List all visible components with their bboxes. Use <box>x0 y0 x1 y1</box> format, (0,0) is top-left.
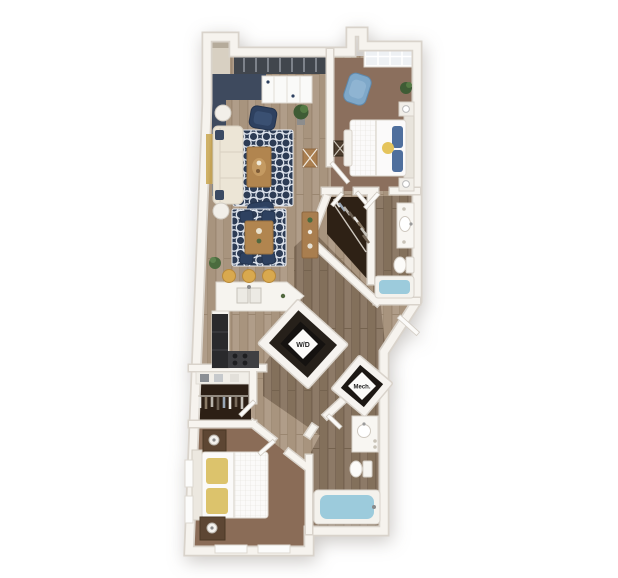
curtain-strip <box>206 134 213 184</box>
floorplan-image: W/D Mech. <box>0 0 618 578</box>
nightstand-2b <box>200 517 225 540</box>
bathtub-2 <box>314 490 380 524</box>
bar-stools <box>223 270 276 283</box>
living-window-band <box>234 56 332 74</box>
vanity-2 <box>352 416 378 452</box>
accent-wall-top <box>212 74 266 100</box>
wd-label: W/D <box>296 342 310 349</box>
pillow-blue-2 <box>392 150 403 172</box>
sofa <box>213 126 243 204</box>
nightstand-1a <box>399 102 414 116</box>
armchair-top <box>248 105 277 131</box>
pillow-yellow-round <box>382 142 394 154</box>
range-stove <box>228 351 259 368</box>
pillow-yellow-2 <box>206 488 228 514</box>
coffee-table <box>247 147 271 187</box>
console-table <box>302 212 318 258</box>
bathtub-1 <box>375 276 414 298</box>
plant-bedroom1 <box>400 82 412 94</box>
apartment-unit: W/D Mech. <box>185 32 420 553</box>
toilet-1 <box>394 257 414 273</box>
nightstand-1b <box>399 178 414 191</box>
mech-label: Mech. <box>353 385 370 391</box>
side-table-top <box>215 105 231 121</box>
floorplan-svg: W/D Mech. <box>0 0 618 578</box>
refrigerator <box>212 314 228 368</box>
vanity-1 <box>397 203 414 248</box>
bed-2 <box>192 450 268 520</box>
plant-dining <box>209 257 221 269</box>
dining-table <box>245 221 273 254</box>
pillow-yellow-1 <box>206 458 228 484</box>
nightstand-2a <box>203 430 226 451</box>
x-leg-table-hall <box>303 149 317 167</box>
side-table-bottom <box>213 203 229 219</box>
faucet <box>247 285 251 289</box>
bed-1 <box>350 116 414 178</box>
pillow-blue-1 <box>392 126 403 148</box>
media-console <box>262 76 312 103</box>
bench-1 <box>344 130 352 166</box>
